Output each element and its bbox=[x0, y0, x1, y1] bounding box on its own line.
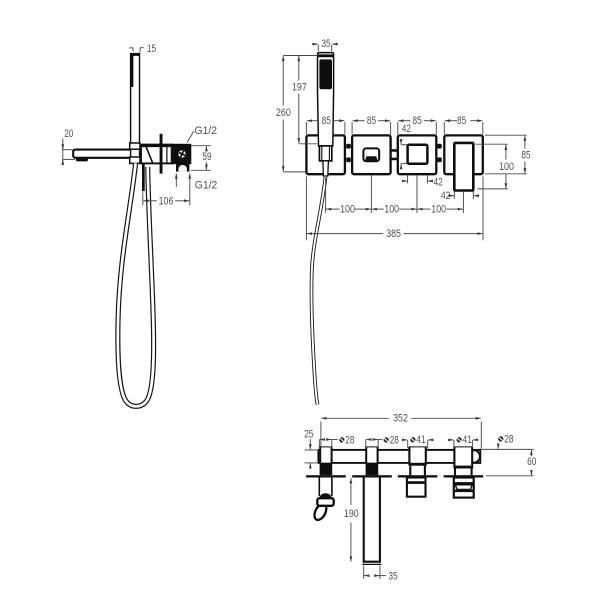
svg-text:197: 197 bbox=[292, 81, 307, 93]
svg-text:42: 42 bbox=[402, 123, 411, 135]
svg-text:85: 85 bbox=[413, 115, 422, 127]
svg-text:28: 28 bbox=[390, 434, 399, 446]
svg-text:28: 28 bbox=[504, 433, 513, 445]
svg-text:106: 106 bbox=[159, 195, 174, 207]
svg-text:20: 20 bbox=[64, 128, 73, 140]
svg-text:385: 385 bbox=[386, 228, 401, 240]
svg-text:85: 85 bbox=[322, 115, 331, 127]
svg-text:35: 35 bbox=[321, 38, 330, 50]
svg-text:352: 352 bbox=[393, 413, 408, 425]
svg-text:100: 100 bbox=[340, 203, 355, 215]
svg-text:100: 100 bbox=[431, 203, 446, 215]
svg-text:260: 260 bbox=[276, 107, 291, 119]
svg-text:42: 42 bbox=[434, 177, 443, 189]
svg-text:59: 59 bbox=[202, 151, 211, 163]
svg-text:G1/2: G1/2 bbox=[195, 125, 218, 137]
svg-text:85: 85 bbox=[457, 115, 466, 127]
svg-text:28: 28 bbox=[345, 434, 354, 446]
svg-text:190: 190 bbox=[344, 508, 359, 520]
svg-text:85: 85 bbox=[521, 149, 530, 161]
svg-text:G1/2: G1/2 bbox=[195, 180, 218, 192]
svg-text:35: 35 bbox=[388, 571, 397, 583]
svg-text:15: 15 bbox=[147, 43, 156, 55]
svg-text:60: 60 bbox=[527, 456, 536, 468]
svg-text:100: 100 bbox=[499, 161, 514, 173]
svg-text:25: 25 bbox=[304, 428, 313, 440]
svg-text:42: 42 bbox=[441, 190, 450, 202]
svg-text:100: 100 bbox=[384, 203, 399, 215]
svg-text:85: 85 bbox=[367, 115, 376, 127]
svg-text:41: 41 bbox=[463, 434, 472, 446]
svg-text:41: 41 bbox=[416, 434, 425, 446]
